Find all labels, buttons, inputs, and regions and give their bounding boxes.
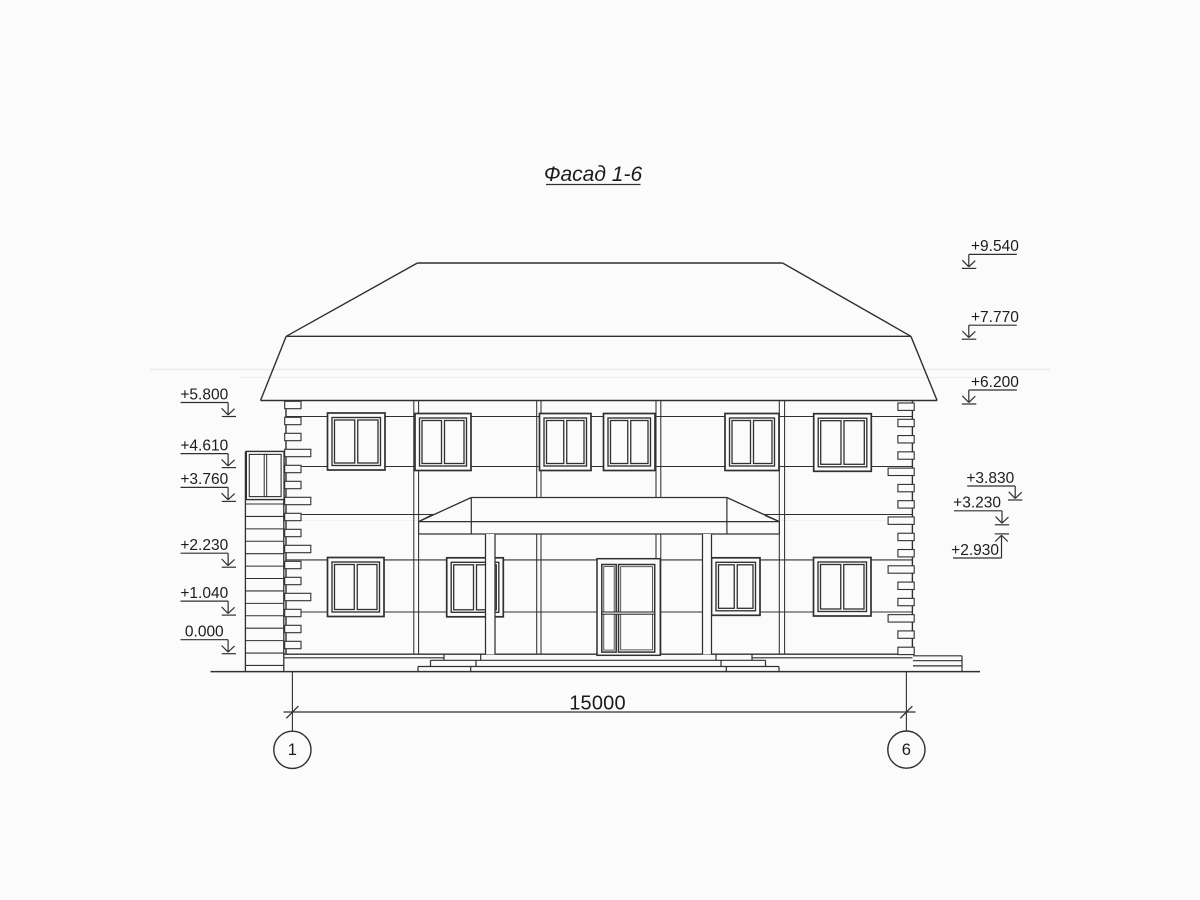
svg-text:15000: 15000	[569, 693, 626, 715]
svg-text:+1.040: +1.040	[180, 585, 228, 602]
svg-text:+3.760: +3.760	[180, 471, 228, 488]
svg-text:0.000: 0.000	[185, 624, 224, 641]
svg-text:+3.230: +3.230	[953, 495, 1001, 512]
svg-text:+2.930: +2.930	[951, 542, 999, 559]
svg-text:+7.770: +7.770	[971, 309, 1019, 326]
svg-text:1: 1	[288, 741, 297, 759]
svg-text:+3.830: +3.830	[966, 470, 1014, 487]
svg-text:6: 6	[902, 741, 911, 759]
svg-text:Фасад 1-6: Фасад 1-6	[544, 163, 643, 186]
svg-text:+2.230: +2.230	[180, 537, 228, 554]
svg-text:+9.540: +9.540	[971, 238, 1019, 255]
svg-text:+6.200: +6.200	[971, 374, 1019, 391]
svg-text:+4.610: +4.610	[180, 437, 228, 454]
svg-text:+5.800: +5.800	[180, 386, 228, 403]
